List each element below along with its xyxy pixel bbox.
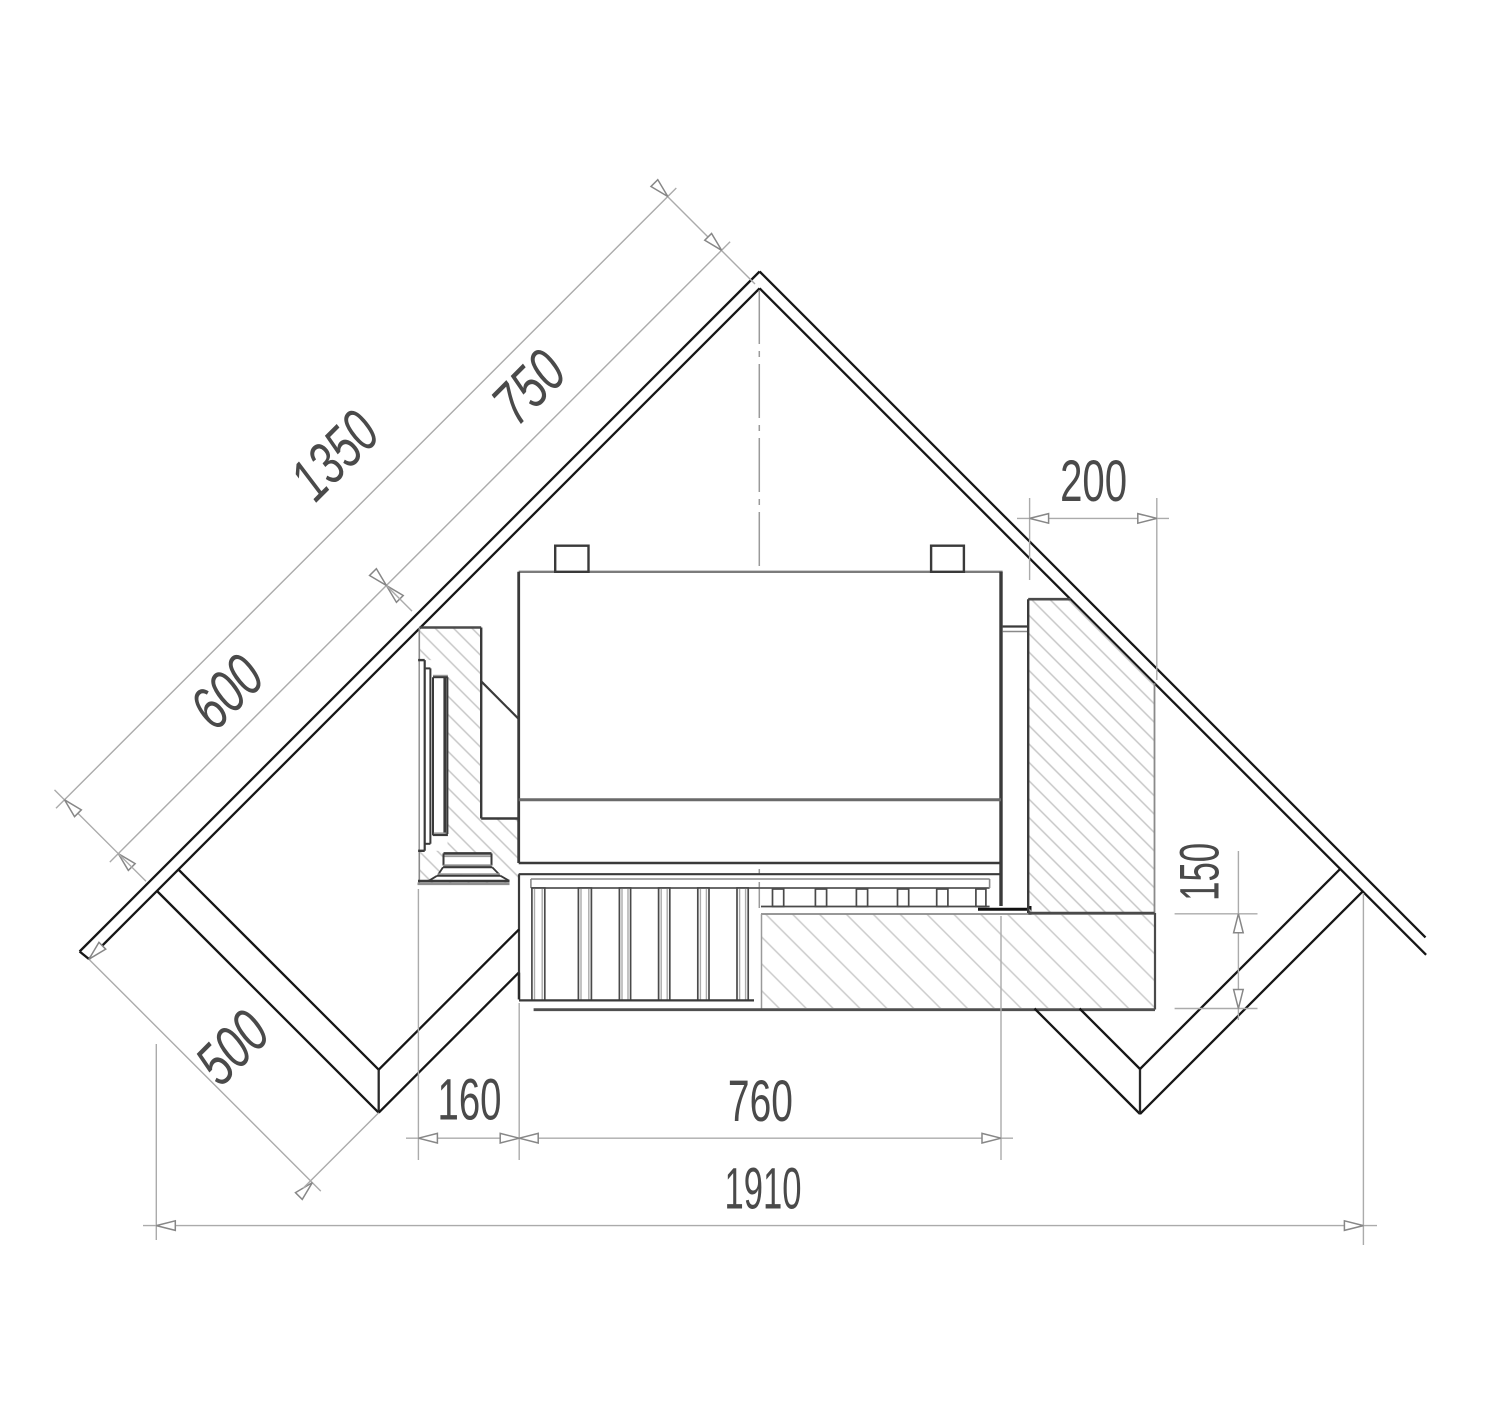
svg-text:760: 760 — [728, 1069, 793, 1134]
svg-text:150: 150 — [1168, 843, 1231, 901]
svg-text:160: 160 — [438, 1068, 502, 1133]
svg-text:1910: 1910 — [725, 1156, 802, 1221]
svg-text:200: 200 — [1060, 449, 1127, 514]
